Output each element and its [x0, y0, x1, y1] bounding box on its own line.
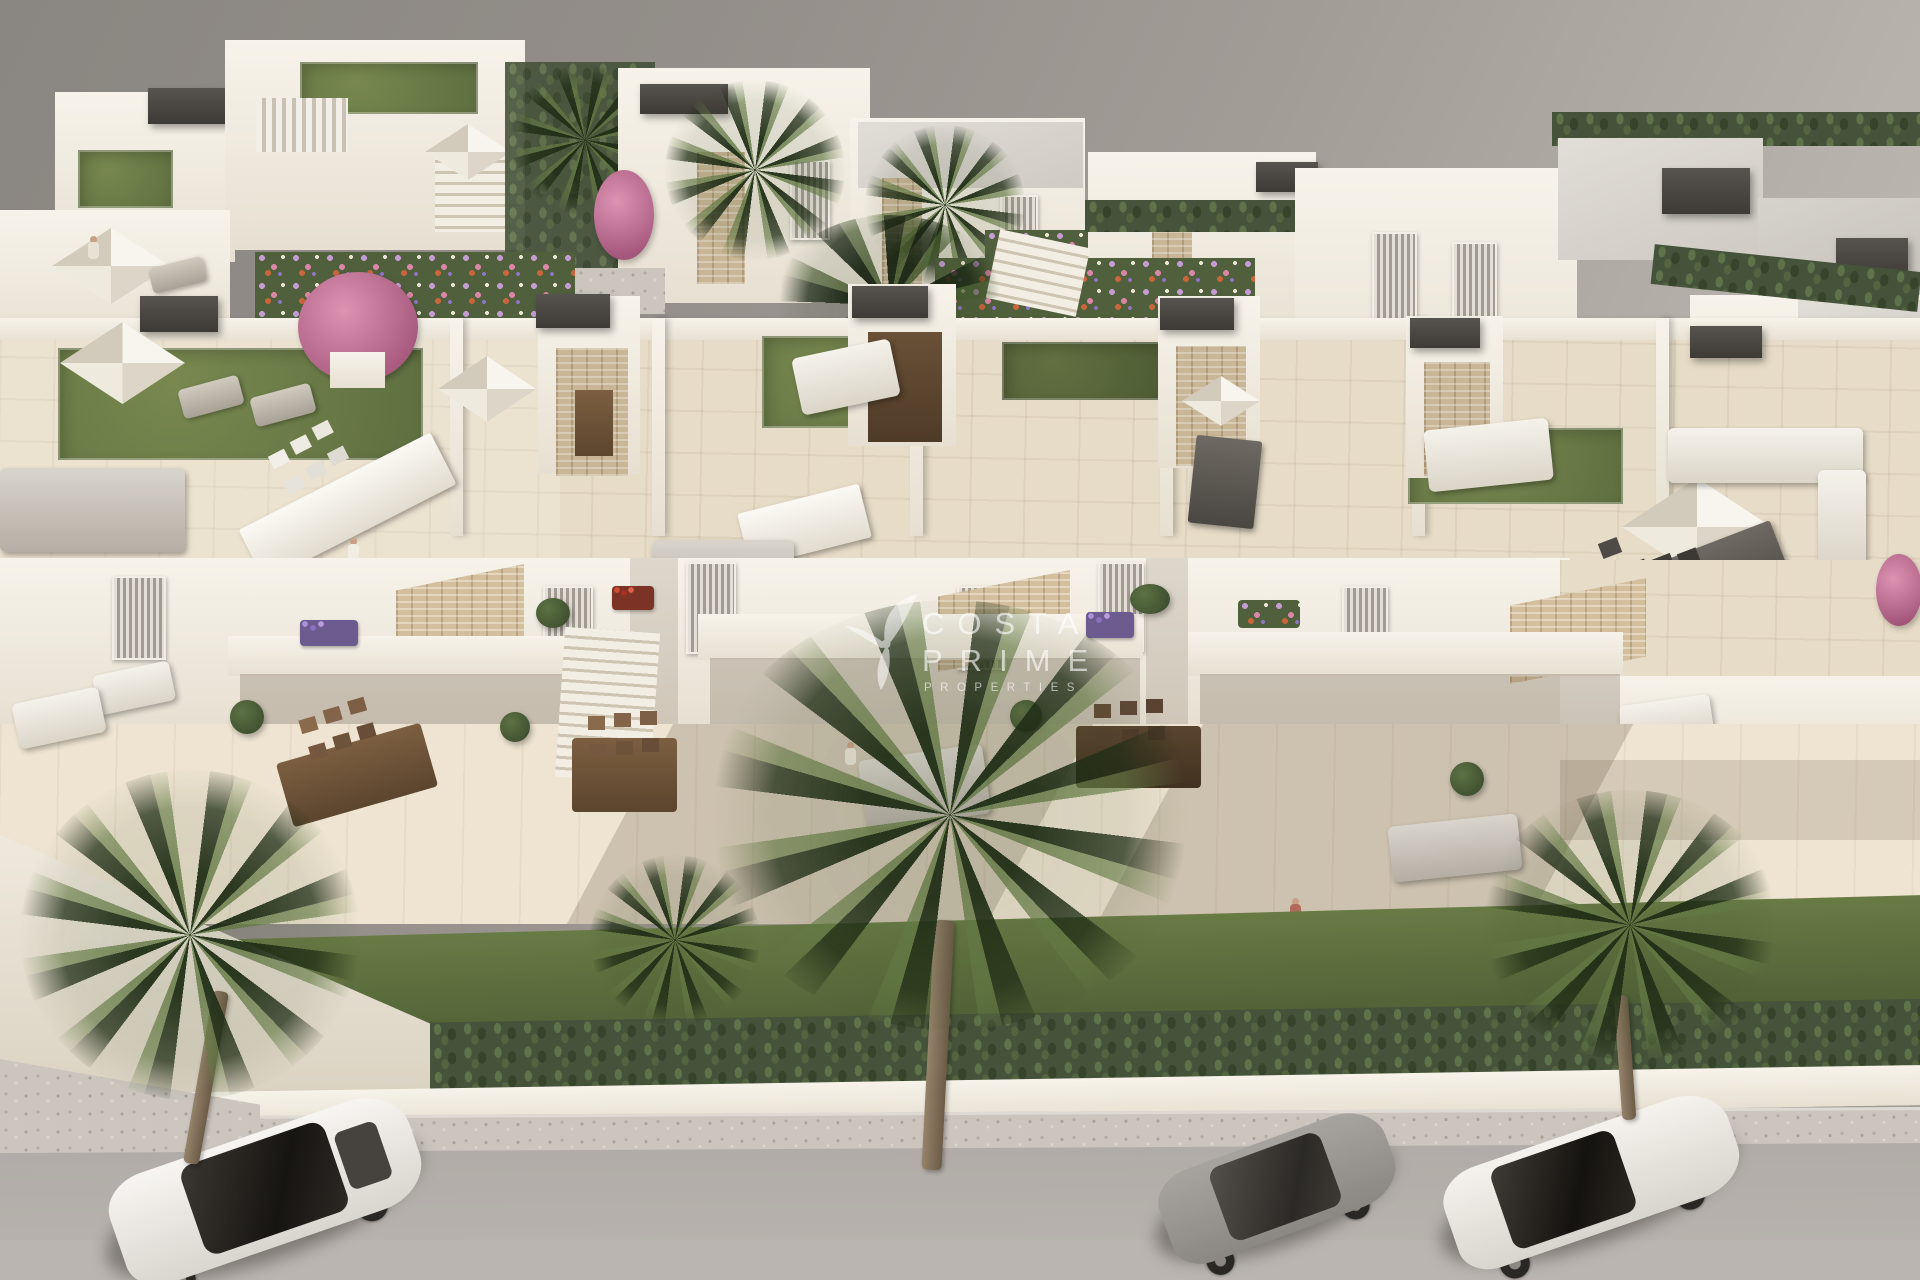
stair-tower-cap: [1160, 298, 1234, 330]
bougainvillea: [594, 170, 654, 260]
palm-tree: [1480, 790, 1780, 1060]
louvered-window: [1372, 232, 1417, 320]
hummingbird-leaf-logo-icon: [840, 592, 922, 692]
costa-prime-watermark: COSTA PRIME PROPERTIES: [840, 590, 1180, 700]
terrace-divider-wall: [450, 318, 463, 536]
lavender-planter: [300, 620, 358, 646]
render-scene: COSTA PRIME PROPERTIES: [0, 0, 1920, 1280]
stair-tower-cap: [536, 294, 610, 328]
bougainvillea: [1876, 554, 1920, 626]
rooftop-turf: [78, 150, 173, 208]
tree-planter: [330, 352, 385, 388]
potted-plant: [1450, 762, 1484, 796]
rooftop-turf: [1002, 342, 1164, 400]
corner-sofa: [0, 468, 185, 552]
watermark-line-2: PRIME: [922, 645, 1105, 676]
geranium-planter: [612, 586, 654, 610]
pergola-slats: [256, 98, 348, 152]
potted-plant: [536, 598, 570, 628]
louvered-window: [112, 576, 166, 660]
stair-tower-cap: [1410, 318, 1480, 348]
outdoor-dining-table: [572, 738, 677, 812]
dining-chairs: [588, 716, 605, 730]
entrance-door: [575, 390, 613, 456]
watermark-line-3: PROPERTIES: [924, 683, 1083, 695]
daybed: [1423, 418, 1554, 493]
corner-sofa: [1818, 470, 1866, 565]
person-body: [88, 242, 99, 259]
balcony-parapet: [1188, 632, 1623, 676]
roof-cap: [1690, 326, 1762, 358]
garden-hedge: [1085, 200, 1320, 232]
potted-plant: [500, 712, 530, 742]
dining-table: [1188, 435, 1263, 529]
watermark-line-1: COSTA: [922, 608, 1092, 639]
person: [88, 236, 99, 260]
stair-tower-cap: [852, 286, 928, 318]
mixed-planter: [1238, 600, 1300, 628]
palm-tree: [20, 770, 360, 1100]
roof-cap: [140, 296, 218, 332]
roof-parapet: [0, 318, 1920, 342]
potted-plant: [230, 700, 264, 734]
roof-cap: [1662, 168, 1750, 214]
terrace-divider-wall: [652, 318, 665, 536]
palm-tree: [590, 855, 760, 1025]
